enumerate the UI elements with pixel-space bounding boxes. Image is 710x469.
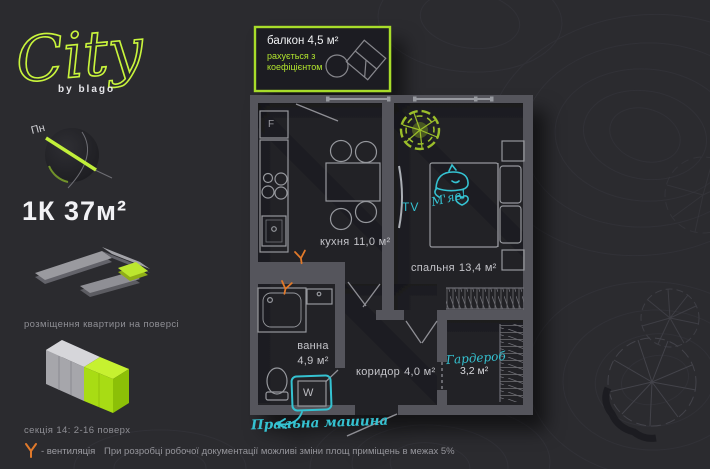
building-section (46, 340, 129, 413)
bedroom-label: спальня13,4 м² (411, 262, 497, 274)
fridge-label: F (268, 119, 274, 130)
compass-north-label: Пн (30, 122, 46, 137)
section-caption: секція 14: 2-16 поверх (24, 425, 244, 436)
brand-byline: by blago (58, 84, 118, 95)
floorplan-page: City by blago Пн 1К 37м² розміщення ква (0, 0, 710, 469)
corridor-label: коридор4,0 м² (356, 366, 435, 378)
floor-position-caption: розміщення квартири на поверсі (24, 319, 244, 330)
floor-position-diagram (18, 238, 198, 318)
closet-rail-hatch (446, 288, 524, 309)
wardrobe-area: 3,2 м² (460, 365, 488, 377)
compass: Пн (18, 108, 138, 198)
balcony-label: балкон 4,5 м² (267, 35, 338, 47)
bathroom-label: ванна 4,9 м² (282, 339, 344, 369)
vent-legend-label: - вентиляція (41, 446, 95, 457)
apartment-title: 1К 37м² (22, 196, 127, 227)
tv-label: TV (402, 200, 419, 214)
balcony-note: рахується з коефіцієнтом (267, 51, 322, 73)
vent-legend-icon (24, 442, 40, 458)
building-footprint (35, 247, 150, 297)
section-diagram (18, 330, 198, 425)
kitchen-label: кухня11,0 м² (320, 236, 390, 248)
disclaimer-text: При розробці робочої документації можлив… (104, 446, 504, 457)
washer-letter: W (303, 387, 313, 399)
